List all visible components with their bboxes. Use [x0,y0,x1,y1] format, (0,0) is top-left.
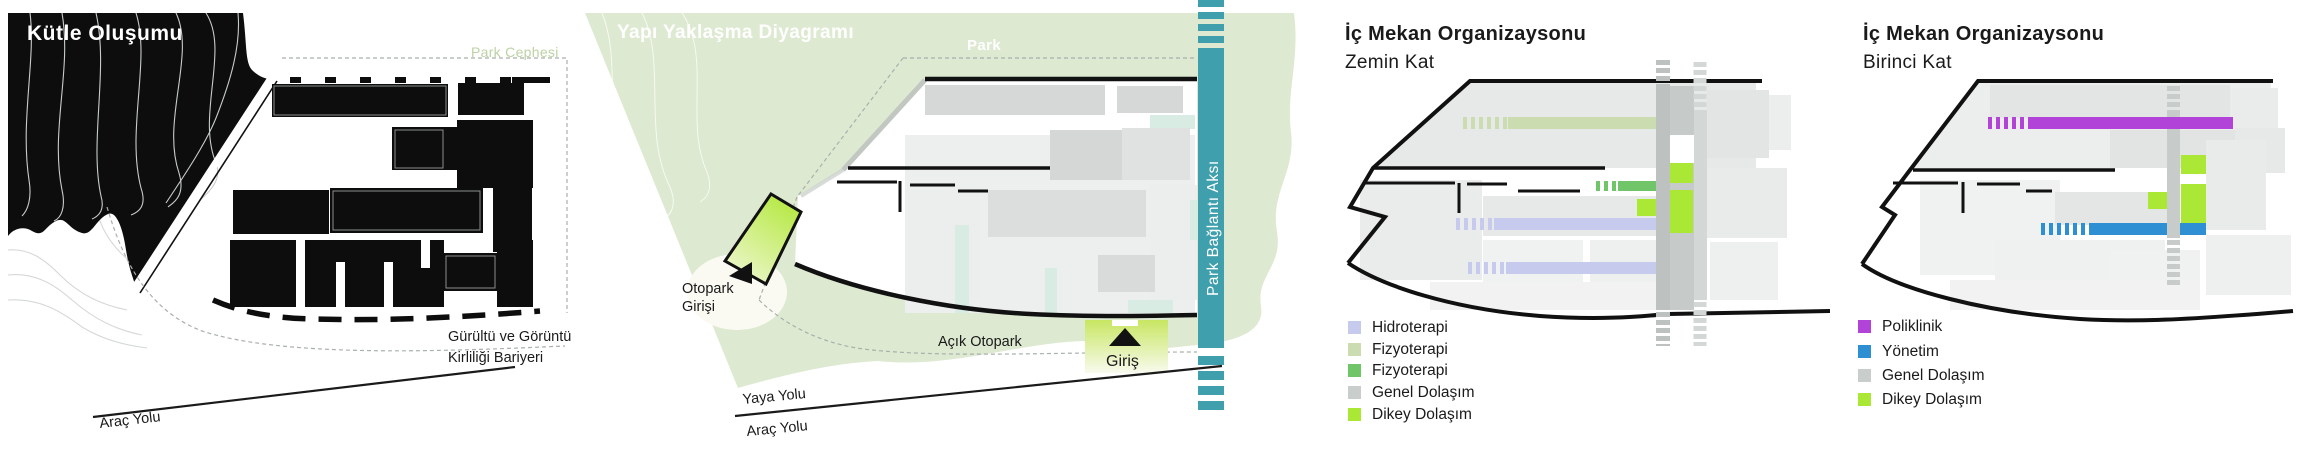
diagram-canvas: Park Bağlantı Aksı Yapı Yaklaşma Diyagra… [0,0,2301,452]
panel3-subtitle: Zemin Kat [1345,52,1435,73]
legend-label: Genel Dolaşım [1372,384,1475,401]
legend-label: Dikey Dolaşım [1372,406,1472,423]
giris-label: Giriş [1106,353,1139,370]
panel2-title: Yapı Yaklaşma Diyagramı [617,22,854,43]
legend-label: Hidroterapi [1372,319,1448,336]
legend-label: Fizyoterapi [1372,341,1448,358]
mass-buildings [230,83,533,307]
panel1-title: Kütle Oluşumu [27,22,183,45]
p4-legend: Poliklinik Yönetim Genel Dolaşım Dikey D… [1858,318,1985,408]
presentation-board: Park Bağlantı Aksı Yapı Yaklaşma Diyagra… [0,0,2301,452]
barrier-label-2: Kirliliği Bariyeri [448,350,543,366]
legend-swatch [1858,345,1871,358]
panel-mass-formation: Kütle Oluşumu Park Cephesi Gürültü ve Gö… [8,13,571,432]
legend-swatch [1348,364,1361,377]
otopark-girisi-label-1: Otopark [682,281,734,297]
legend-label: Dikey Dolaşım [1882,391,1982,408]
panel-ground-floor: İç Mekan Organizaysonu Zemin Kat Hidrote… [1345,22,1830,423]
panel-first-floor: İç Mekan Organizaysonu Birinci Kat Polik… [1858,22,2293,408]
yaya-yolu-label: Yaya Yolu [742,386,807,408]
panel-site-approach: Park Bağlantı Aksı Yapı Yaklaşma Diyagra… [585,0,1296,440]
panel4-subtitle: Birinci Kat [1863,52,1952,73]
legend-swatch [1348,321,1361,334]
legend-swatch [1858,393,1871,406]
acik-otopark-label: Açık Otopark [938,334,1023,350]
legend-swatch [1858,320,1871,333]
panel3-title: İç Mekan Organizaysonu [1345,22,1586,45]
panel4-title: İç Mekan Organizaysonu [1863,22,2104,45]
barrier-label-1: Gürültü ve Görüntü [448,329,571,345]
legend-swatch [1348,386,1361,399]
road-line-2 [735,366,1222,416]
park-axis-label: Park Bağlantı Aksı [1205,160,1222,296]
legend-label: Poliklinik [1882,318,1943,335]
arac-yolu-label-2: Araç Yolu [746,418,809,440]
legend-label: Fizyoterapi [1372,362,1448,379]
park-label: Park [967,37,1001,54]
legend-swatch [1858,369,1871,382]
legend-label: Genel Dolaşım [1882,367,1985,384]
park-connection-axis: Park Bağlantı Aksı [1198,0,1224,410]
legend-label: Yönetim [1882,343,1939,360]
p3-legend: Hidroterapi Fizyoterapi Fizyoterapi Gene… [1348,319,1475,423]
p4-circulation-band [2167,86,2180,286]
otopark-girisi-label-2: Girişi [682,299,715,315]
legend-swatch [1348,408,1361,421]
arac-yolu-label-1: Araç Yolu [99,409,162,432]
park-cephesi-label: Park Cephesi [471,44,559,60]
legend-swatch [1348,343,1361,356]
